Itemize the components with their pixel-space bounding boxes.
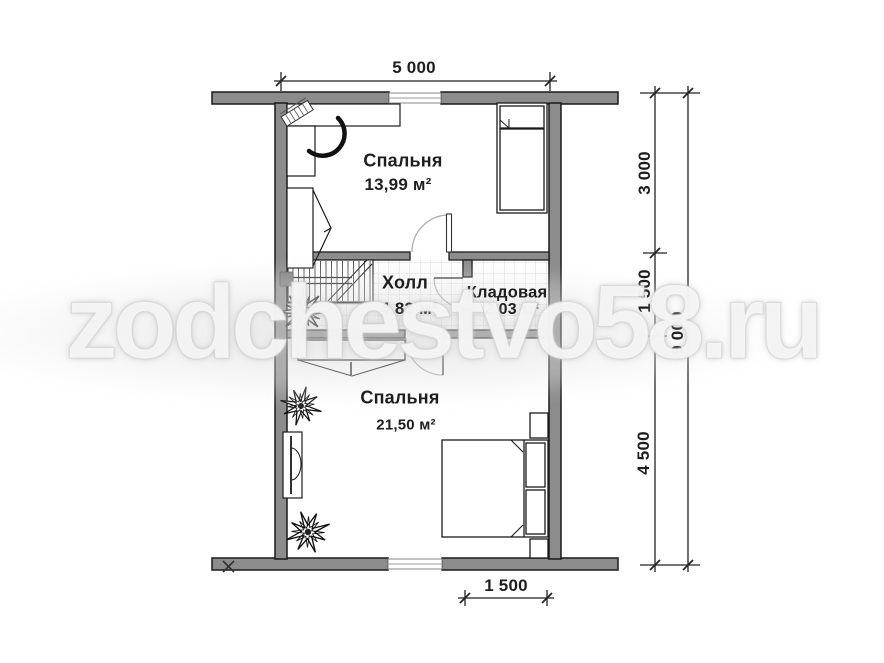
room-area-bedroom-1: 13,99 м² xyxy=(364,175,431,195)
window-top-icon xyxy=(389,93,441,103)
dim-width-bottom: 1 500 xyxy=(484,576,528,596)
floor-plan-page: Спальня 13,99 м² Холл 4,83 м² Кладовая 2… xyxy=(0,0,884,663)
bedroom1-door xyxy=(412,214,452,252)
dim-height-total: 9 000 xyxy=(668,311,688,355)
room-area-bedroom-2: 21,50 м² xyxy=(376,417,435,434)
dim-height-bottom: 4 500 xyxy=(634,431,654,475)
room-label-storage: Кладовая xyxy=(467,284,548,303)
room-label-bedroom-1: Спальня xyxy=(363,151,442,172)
floor-plan-drawing xyxy=(0,0,884,663)
dim-height-middle: 1 500 xyxy=(635,269,655,313)
bedroom2-door xyxy=(406,338,443,375)
room-area-hall: 4,83 м² xyxy=(380,299,437,319)
room-area-storage: 2,03 м² xyxy=(485,301,539,319)
window-bottom-icon xyxy=(388,559,442,569)
room-label-hall: Холл xyxy=(382,273,428,294)
nightstand-top xyxy=(530,413,548,438)
dim-width-top: 5 000 xyxy=(392,58,436,78)
mirror-dresser xyxy=(283,432,302,498)
wardrobe-bedroom2 xyxy=(298,340,405,376)
dim-height-top: 3 000 xyxy=(635,151,655,195)
stairs-post xyxy=(280,272,293,286)
single-bed xyxy=(497,103,547,213)
room-label-bedroom-2: Спальня xyxy=(360,388,439,409)
nightstand-bottom xyxy=(530,539,548,558)
double-bed xyxy=(442,413,548,558)
